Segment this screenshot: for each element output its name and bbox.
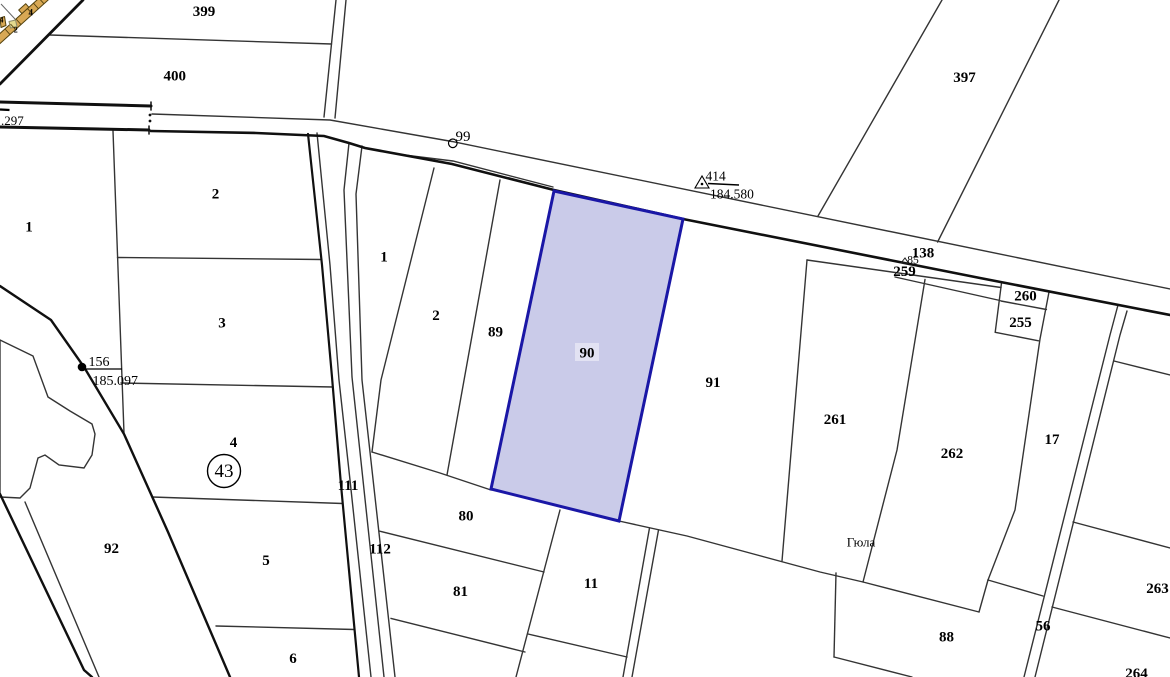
svg-text:17: 17 [1045, 432, 1061, 448]
svg-text:6: 6 [289, 651, 297, 667]
svg-text:91: 91 [706, 375, 721, 391]
svg-text:4: 4 [230, 435, 238, 451]
svg-text:112: 112 [369, 542, 391, 558]
svg-text:184.580: 184.580 [710, 187, 754, 202]
svg-text:5: 5 [262, 553, 270, 569]
svg-text:89: 89 [488, 325, 503, 341]
svg-text:156: 156 [89, 355, 110, 370]
svg-text:92: 92 [104, 541, 119, 557]
svg-text:259: 259 [893, 264, 916, 280]
svg-text:3: 3 [218, 316, 226, 332]
svg-text:260: 260 [1014, 289, 1037, 305]
svg-text:255: 255 [1009, 315, 1032, 331]
svg-text:2: 2 [432, 308, 440, 324]
svg-text:264: 264 [1125, 666, 1148, 677]
svg-text:414: 414 [706, 168, 727, 183]
svg-text:262: 262 [941, 446, 964, 462]
svg-text:56: 56 [1036, 619, 1052, 635]
svg-text:185.097: 185.097 [93, 374, 139, 389]
svg-text:4: 4 [29, 8, 34, 18]
svg-text:43: 43 [215, 461, 234, 482]
svg-text:Гюла: Гюла [847, 535, 876, 550]
svg-text:400: 400 [163, 69, 186, 85]
svg-text:80: 80 [459, 509, 474, 525]
svg-text:4: 4 [0, 16, 4, 25]
svg-text:111: 111 [338, 478, 359, 494]
svg-text:2: 2 [212, 187, 220, 203]
svg-text:1: 1 [25, 220, 33, 236]
svg-text:399: 399 [193, 4, 216, 20]
svg-text:81: 81 [453, 584, 468, 600]
svg-text:90: 90 [580, 346, 595, 362]
svg-text:.297: .297 [1, 113, 24, 128]
svg-text:88: 88 [939, 630, 954, 646]
svg-text:261: 261 [824, 412, 847, 428]
svg-text:263: 263 [1146, 581, 1169, 597]
svg-text:99: 99 [456, 129, 471, 145]
svg-text:397: 397 [953, 70, 976, 86]
svg-text:1: 1 [380, 250, 388, 266]
svg-text:2: 2 [14, 26, 18, 35]
svg-text:11: 11 [584, 576, 598, 592]
